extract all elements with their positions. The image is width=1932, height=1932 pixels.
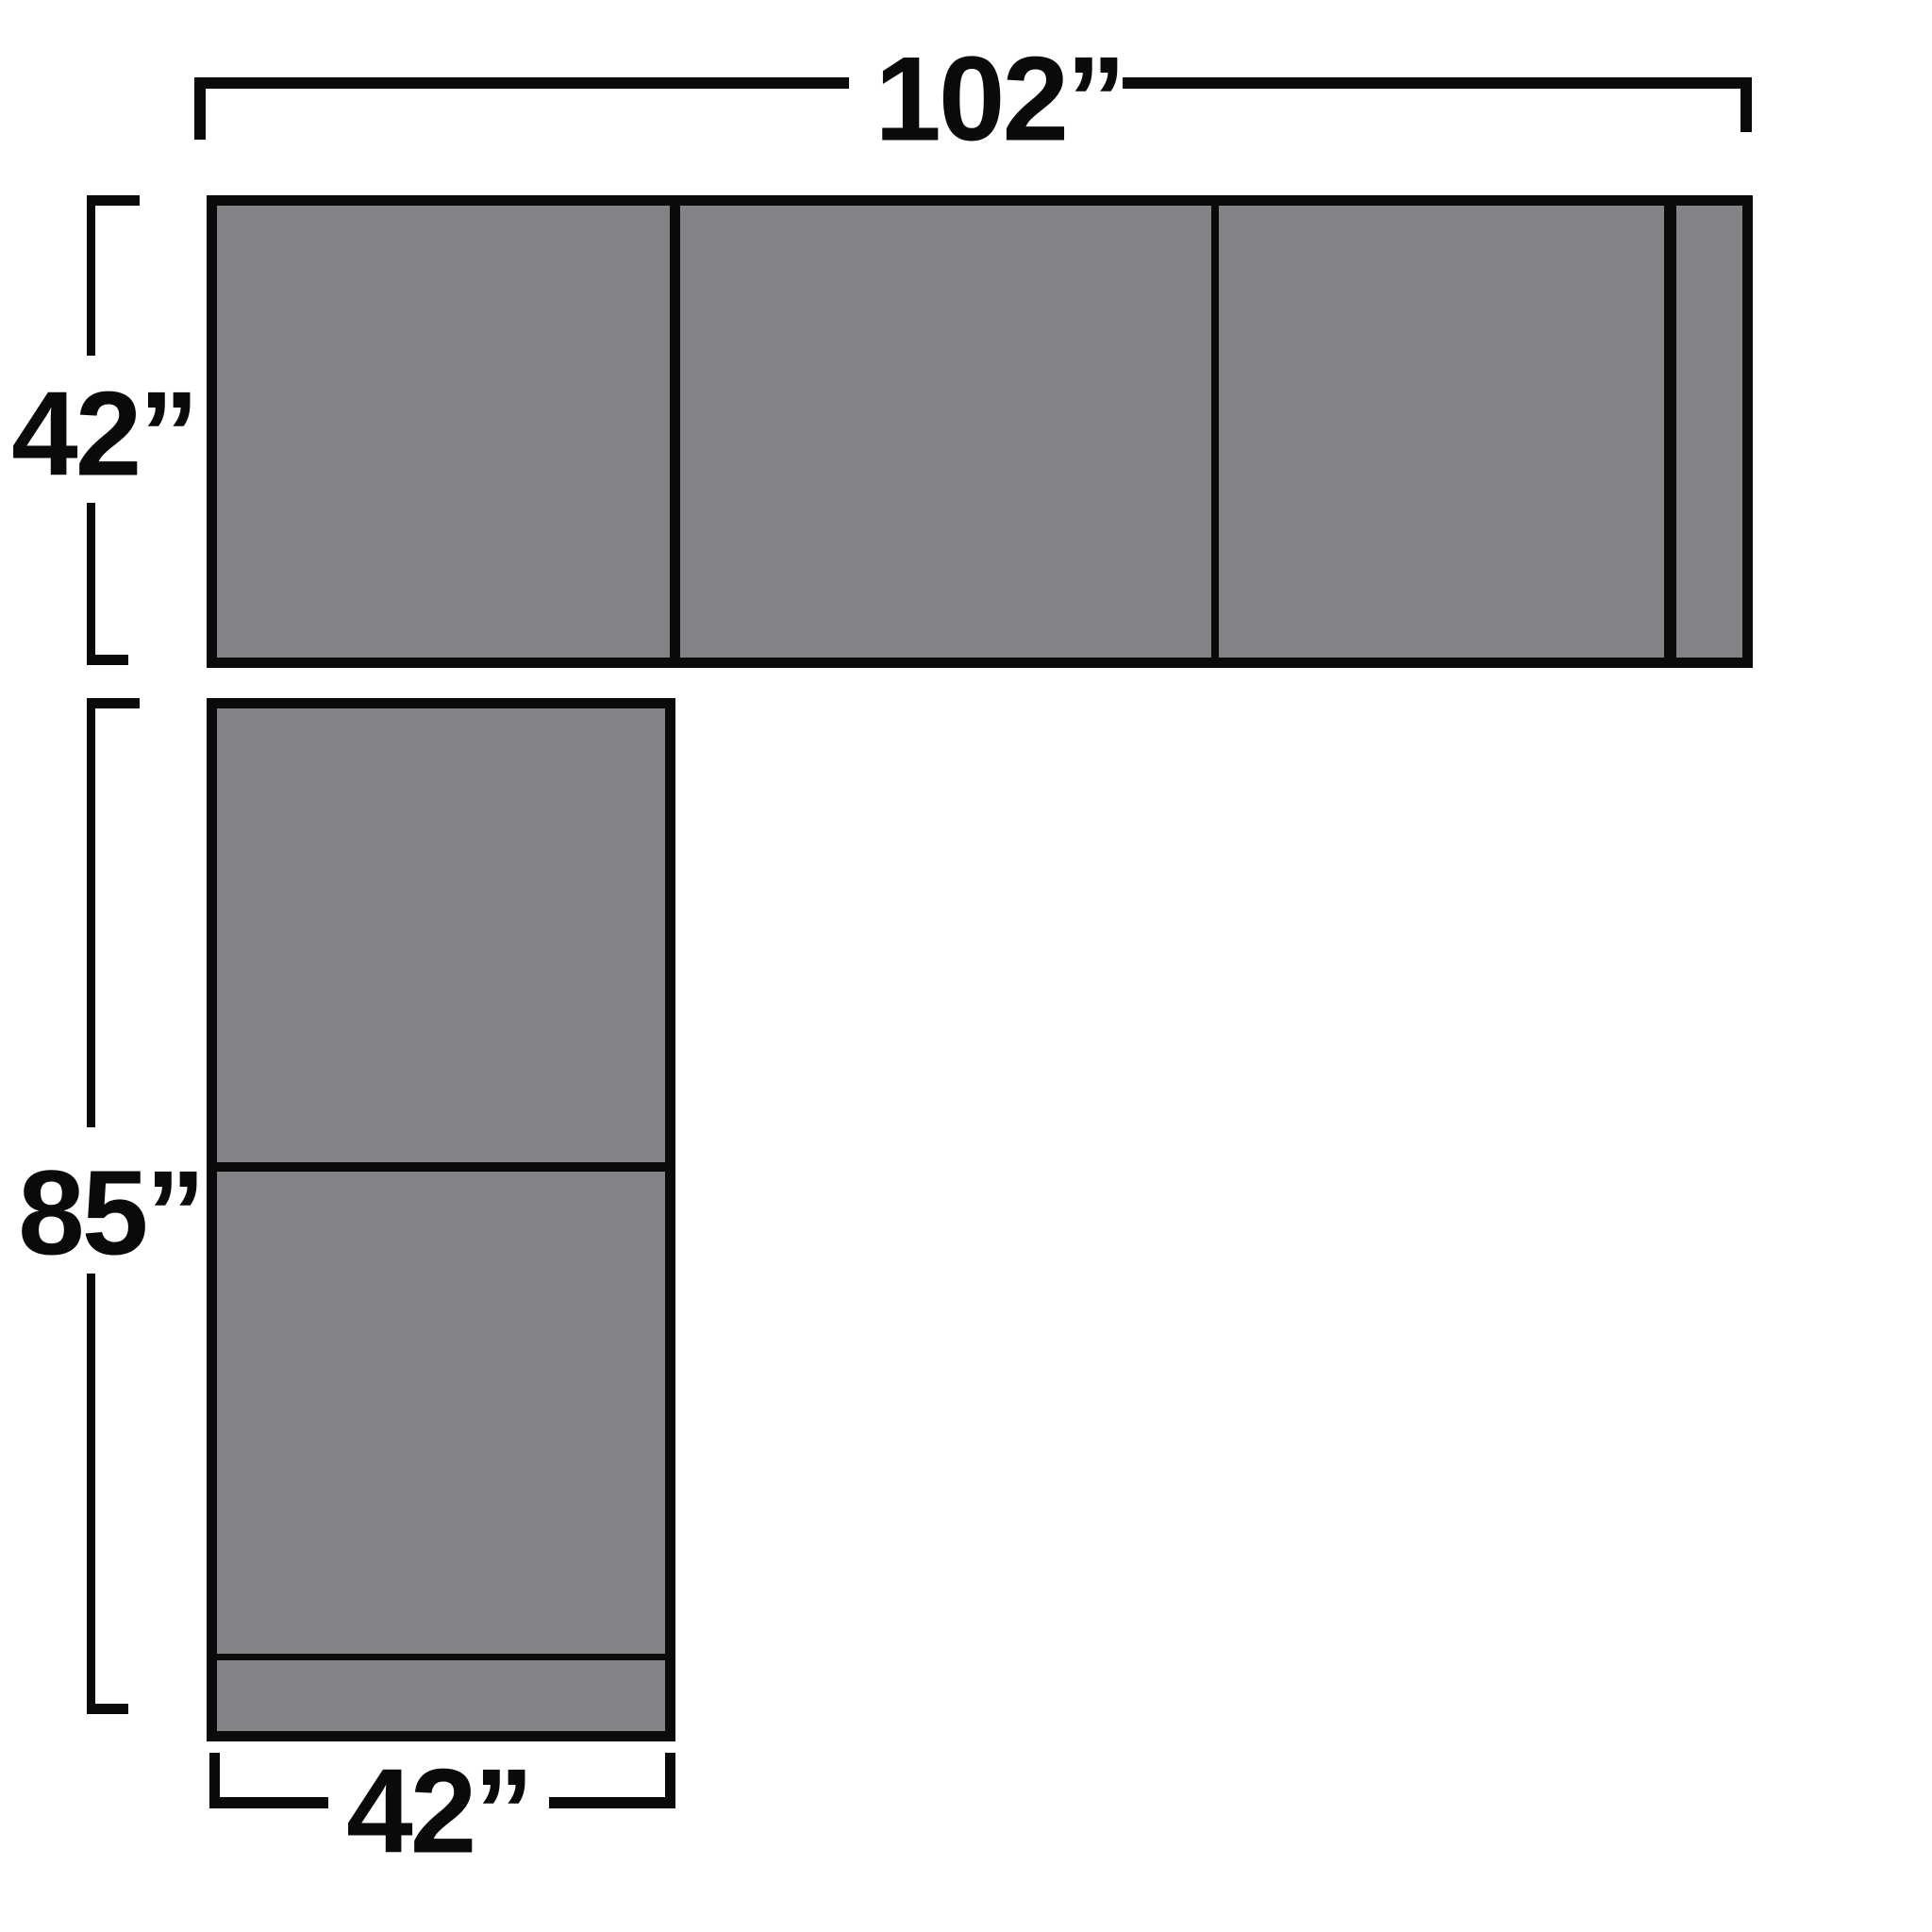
bottom-dimension-line-right <box>549 1797 670 1808</box>
top-dimension-line-left <box>198 77 849 89</box>
column-section-lower <box>217 1172 665 1654</box>
sofa-section-right <box>1219 206 1664 658</box>
sofa-section-left <box>217 206 670 658</box>
top-dimension-tick-right <box>1740 77 1752 132</box>
top-dimension-tick-left <box>194 77 206 140</box>
sofa-armrest-strip <box>1676 206 1742 658</box>
left-depth-tick-top <box>91 195 140 206</box>
left-length-line-upper <box>87 698 95 1127</box>
left-length-tick-top <box>91 698 140 708</box>
left-length-line-lower <box>87 1274 95 1714</box>
sofa-left-column <box>207 698 675 1741</box>
left-length-label: 85” <box>18 1154 203 1274</box>
sofa-section-middle <box>680 206 1211 658</box>
bottom-width-label: 42” <box>346 1752 531 1872</box>
sectional-diagram: 102” 42” 85” 42” <box>0 0 1932 1932</box>
left-length-tick-bottom <box>91 1704 128 1714</box>
top-dimension-line-right <box>1123 77 1747 89</box>
left-depth-tick-bottom <box>91 655 128 665</box>
sofa-top-row <box>207 195 1753 668</box>
top-width-label: 102” <box>874 40 1123 159</box>
column-bottom-strip <box>217 1660 665 1731</box>
side-depth-label: 42” <box>11 375 196 494</box>
bottom-dimension-line-left <box>215 1797 328 1808</box>
left-depth-line-lower <box>87 503 95 665</box>
left-depth-line-upper <box>87 195 95 356</box>
column-section-upper <box>217 708 665 1162</box>
